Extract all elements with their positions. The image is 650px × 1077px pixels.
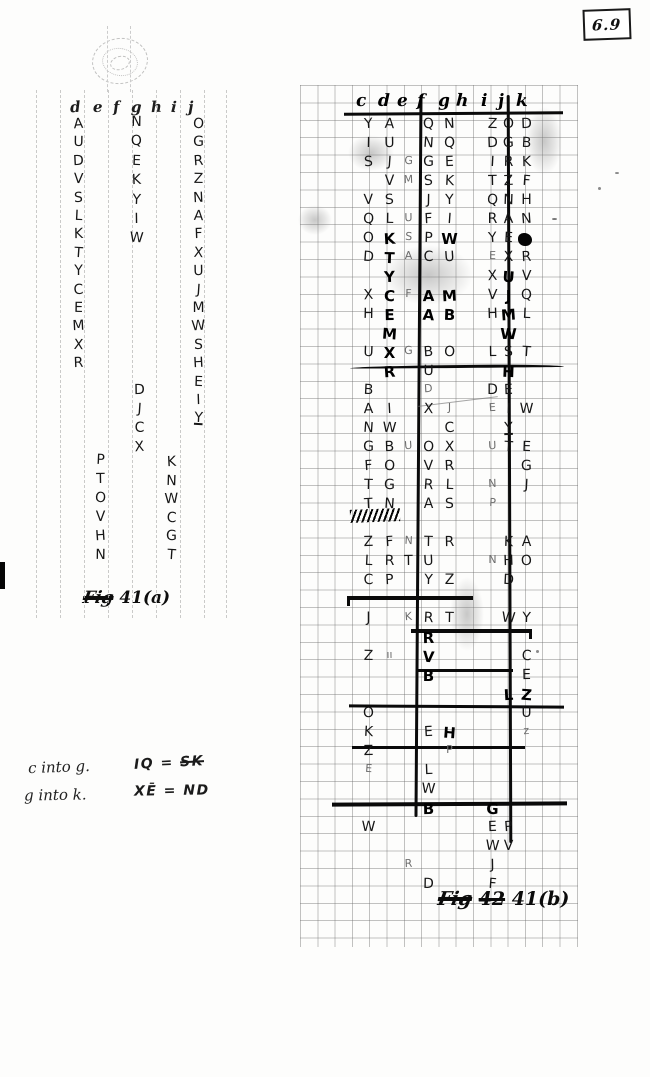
handwritten-letter: W xyxy=(189,318,207,337)
toner-smudge xyxy=(298,205,332,235)
horizontal-rule xyxy=(332,801,567,806)
handwritten-letter: W xyxy=(127,230,145,249)
handwritten-letter: K xyxy=(360,724,378,743)
column-header-letter: i xyxy=(171,98,178,116)
note-formula2: XĒ = ND xyxy=(134,782,210,799)
caption-fig-number: 41(b) xyxy=(512,888,570,910)
handwritten-letter: Z xyxy=(517,685,535,704)
dotted-column-rule xyxy=(36,90,37,618)
handwritten-letter: D xyxy=(500,572,518,591)
handwritten-letter: A xyxy=(518,534,535,552)
handwritten-letter: L xyxy=(381,211,398,229)
handwritten-letter: B xyxy=(420,800,437,818)
handwritten-letter: R xyxy=(500,154,517,172)
handwritten-letter: O xyxy=(91,489,109,508)
handwritten-letter: K xyxy=(441,173,459,192)
handwritten-letter: Q xyxy=(518,287,536,306)
column-header-letter: d xyxy=(69,98,81,117)
handwritten-letter: V xyxy=(500,838,517,856)
handwritten-letter: J xyxy=(500,287,517,305)
handwritten-letter: S xyxy=(190,337,207,355)
handwritten-letter: V xyxy=(381,173,398,191)
handwritten-letter: U xyxy=(420,363,437,381)
handwritten-letter: G xyxy=(400,154,418,173)
handwritten-letter: Y xyxy=(381,268,399,287)
handwritten-letter: M xyxy=(380,324,398,343)
handwritten-letter: I xyxy=(190,392,208,411)
handwritten-letter: G xyxy=(381,477,398,495)
scan-speck xyxy=(598,187,601,190)
handwritten-letter: J xyxy=(189,281,207,300)
handwritten-letter: W xyxy=(163,491,181,510)
handwritten-letter: R xyxy=(381,553,398,571)
dotted-column-rule xyxy=(180,90,181,618)
handwritten-letter: I xyxy=(484,154,502,173)
handwritten-letter: M xyxy=(400,173,418,192)
handwritten-letter: Q xyxy=(360,211,378,230)
handwritten-letter: K xyxy=(500,534,518,553)
handwritten-letter: T xyxy=(484,173,501,191)
handwritten-letter: G xyxy=(163,528,180,546)
handwritten-letter: A xyxy=(419,305,437,324)
handwritten-letter: B xyxy=(419,343,437,362)
handwritten-letter: K xyxy=(381,230,399,249)
handwritten-letter: I xyxy=(500,401,518,420)
handwritten-letter: O xyxy=(517,552,535,571)
handwritten-letter: A xyxy=(400,249,417,267)
handwritten-letter: E xyxy=(190,373,208,392)
handwritten-letter: F xyxy=(190,226,208,245)
handwritten-letter: S xyxy=(70,189,88,208)
handwritten-letter: X xyxy=(130,438,148,457)
handwritten-letter: G xyxy=(499,134,517,153)
handwritten-letter: O xyxy=(441,344,459,363)
handwritten-letter: K xyxy=(128,172,146,191)
handwritten-letter: R xyxy=(420,629,437,647)
handwritten-letter: C xyxy=(131,420,148,438)
column-header-letter: j xyxy=(188,98,194,116)
handwritten-letter: X xyxy=(359,286,377,305)
handwritten-letter: V xyxy=(419,647,437,666)
handwritten-letter: X xyxy=(70,337,88,356)
handwritten-letter: Y xyxy=(500,420,517,438)
handwritten-letter: F xyxy=(359,457,377,476)
handwritten-letter: P xyxy=(92,452,110,471)
dotted-column-rule xyxy=(226,90,227,618)
handwritten-letter: X xyxy=(381,344,398,362)
handwritten-letter: Z xyxy=(484,116,502,135)
handwritten-letter: W xyxy=(360,819,377,837)
handwritten-letter: H xyxy=(91,527,109,546)
handwritten-letter: R xyxy=(400,857,418,876)
handwritten-letter: S xyxy=(441,496,459,515)
handwritten-letter: M xyxy=(499,305,517,324)
handwritten-letter: A xyxy=(420,287,437,305)
handwritten-letter: L xyxy=(420,762,438,781)
handwritten-letter: O xyxy=(420,439,438,458)
handwritten-letter: J xyxy=(360,610,377,628)
caption-fig-word: Fig xyxy=(436,888,474,910)
handwritten-letter: E xyxy=(381,306,398,324)
handwritten-letter: L xyxy=(518,306,536,325)
handwritten-letter: H xyxy=(500,553,518,572)
column-header-letter: f xyxy=(417,91,425,111)
handwritten-letter: V xyxy=(420,458,437,476)
handwritten-letter: B xyxy=(518,135,536,154)
handwritten-letter: T xyxy=(517,343,535,362)
handwritten-letter: F xyxy=(400,287,417,305)
handwritten-letter: N xyxy=(517,210,535,229)
handwritten-letter: N xyxy=(484,553,501,571)
handwritten-letter: E xyxy=(500,230,518,249)
scan-edge-mark xyxy=(0,562,5,589)
dotted-column-rule xyxy=(60,90,61,618)
handwritten-letter: N xyxy=(163,472,181,491)
handwritten-letter: E xyxy=(70,300,87,318)
handwritten-letter: U xyxy=(400,211,417,229)
handwritten-letter: R xyxy=(70,355,88,374)
handwritten-letter: K xyxy=(163,454,181,473)
handwritten-letter: F xyxy=(517,172,535,191)
handwritten-letter: P xyxy=(499,818,517,837)
scan-speck xyxy=(615,172,619,174)
handwritten-letter: Q xyxy=(128,133,146,152)
handwritten-letter: J xyxy=(420,192,437,210)
fig-41b-caption: Fig 42 41(b) xyxy=(438,888,569,910)
handwritten-letter: X xyxy=(420,401,438,420)
handwritten-letter: O xyxy=(360,705,378,724)
handwritten-letter: N xyxy=(441,116,459,135)
handwritten-letter: U xyxy=(399,438,417,457)
handwritten-letter: U xyxy=(381,135,398,153)
handwritten-letter: U xyxy=(70,134,87,152)
handwritten-letter xyxy=(518,233,532,246)
column-header-letter: i xyxy=(481,91,487,111)
handwritten-letter: P xyxy=(484,496,502,515)
handwritten-letter: W xyxy=(420,781,438,800)
handwritten-letter: Z xyxy=(441,572,458,590)
handwritten-letter: R xyxy=(420,610,438,629)
handwritten-letter: Q xyxy=(420,116,437,134)
handwritten-letter: I xyxy=(381,401,399,420)
column-header-letter: e xyxy=(397,91,409,111)
handwritten-letter: T xyxy=(381,249,399,268)
handwritten-letter: Y xyxy=(190,410,208,429)
handwritten-letter: L xyxy=(441,477,459,496)
handwritten-letter: Y xyxy=(128,191,146,210)
handwritten-letter: E xyxy=(441,154,459,173)
handwritten-letter: J xyxy=(518,477,536,496)
handwritten-letter: L xyxy=(360,553,378,572)
handwritten-letter: X xyxy=(500,249,517,267)
handwritten-letter: V xyxy=(484,287,502,306)
handwritten-letter: B xyxy=(381,439,399,458)
handwritten-letter: F xyxy=(483,875,501,894)
handwritten-letter: G xyxy=(360,439,377,457)
handwritten-letter: N xyxy=(484,477,502,496)
note-formula1: IQ = SK xyxy=(134,753,205,773)
page-number-box: 6.9 xyxy=(582,8,631,41)
handwritten-letter: T xyxy=(499,438,517,457)
handwritten-letter: K xyxy=(518,154,535,172)
dotted-column-rule xyxy=(156,90,157,618)
handwritten-letter: S xyxy=(380,191,398,210)
handwritten-letter: W xyxy=(441,230,458,248)
handwritten-letter: E xyxy=(128,153,146,172)
handwritten-letter: D xyxy=(70,152,88,171)
handwritten-letter: A xyxy=(420,496,437,514)
handwritten-letter: V xyxy=(518,268,536,287)
handwritten-letter: E xyxy=(518,667,535,685)
handwritten-letter: T xyxy=(92,471,109,489)
handwritten-letter: H xyxy=(518,192,535,210)
handwritten-letter: U xyxy=(440,248,458,267)
handwritten-letter: Y xyxy=(420,572,438,591)
handwritten-letter: R xyxy=(189,152,207,171)
handwritten-letter: P xyxy=(381,572,399,591)
handwritten-letter: R xyxy=(441,534,458,552)
handwritten-letter: N xyxy=(190,189,208,208)
handwritten-letter: N xyxy=(128,114,145,132)
handwritten-letter: J xyxy=(441,401,458,419)
handwritten-letter: Y xyxy=(441,192,458,210)
handwritten-letter: R xyxy=(518,249,536,268)
handwritten-letter: C xyxy=(360,572,377,590)
handwritten-letter: I xyxy=(440,210,458,229)
handwritten-letter: C xyxy=(440,419,458,438)
handwritten-letter: Y xyxy=(518,610,536,629)
handwritten-letter: E xyxy=(500,382,518,401)
handwritten-letter: W xyxy=(518,401,535,419)
handwritten-letter: H xyxy=(440,723,458,742)
handwritten-letter: K xyxy=(399,609,417,628)
column-header-letter: f xyxy=(113,98,120,116)
handwritten-letter: T xyxy=(400,553,417,571)
fig-41b: Fig 42 41(b) cdefghijkYAQNZODIUNQDGBSJGG… xyxy=(300,85,578,947)
column-header-letter: h xyxy=(151,98,163,116)
scan-speck xyxy=(536,650,539,653)
handwritten-letter: C xyxy=(381,287,399,306)
handwritten-letter: T xyxy=(69,244,87,263)
column-header-letter: j xyxy=(497,91,504,111)
handwritten-letter: R xyxy=(419,476,437,495)
note-line1: c into g. xyxy=(28,757,90,777)
handwritten-letter: D xyxy=(131,382,148,400)
handwritten-letter: C xyxy=(69,281,87,300)
handwritten-letter: R xyxy=(380,362,398,381)
caption-fig-number: 41(a) xyxy=(119,588,170,608)
handwritten-letter: N xyxy=(380,495,398,514)
handwritten-letter: O xyxy=(189,115,207,134)
handwritten-letter: I xyxy=(360,135,377,153)
handwritten-letter: S xyxy=(419,172,437,191)
handwritten-letter: G xyxy=(420,154,437,172)
handwritten-letter: T xyxy=(360,496,378,515)
handwritten-letter: H xyxy=(360,306,377,324)
handwritten-letter: A xyxy=(69,115,87,134)
handwritten-letter: M xyxy=(441,287,459,306)
handwritten-letter: Z xyxy=(360,648,377,666)
handwritten-letter: H xyxy=(500,363,518,382)
handwritten-letter: M xyxy=(70,318,88,337)
handwritten-letter: C xyxy=(163,509,181,528)
handwritten-letter: ıı xyxy=(381,648,398,666)
handwritten-letter: N xyxy=(400,534,418,553)
handwritten-letter: Z xyxy=(190,171,207,189)
handwritten-letter: U xyxy=(499,267,517,286)
handwritten-letter: U xyxy=(360,344,378,363)
handwritten-letter: W xyxy=(484,838,502,857)
handwritten-letter: Z xyxy=(500,173,518,192)
handwritten-letter: O xyxy=(500,116,517,134)
scan-speck xyxy=(552,218,557,220)
doodle-line xyxy=(130,26,131,92)
handwritten-letter: G xyxy=(518,458,536,477)
column-header-letter: k xyxy=(516,91,528,111)
column-header-letter: g xyxy=(438,91,450,111)
handwritten-letter: S xyxy=(360,154,378,173)
handwritten-letter: H xyxy=(190,355,208,374)
handwritten-letter: Q xyxy=(441,135,459,154)
handwritten-letter: z xyxy=(517,723,535,742)
handwritten-letter: W xyxy=(381,420,399,439)
handwritten-letter: B xyxy=(360,382,378,401)
caption-fig-word: Fig xyxy=(81,588,115,608)
handwritten-letter: A xyxy=(500,211,518,230)
handwritten-letter: P xyxy=(420,230,438,249)
handwritten-letter: J xyxy=(380,153,398,172)
handwritten-letter: V xyxy=(70,171,88,190)
handwritten-letter: O xyxy=(381,458,399,477)
handwritten-letter: P xyxy=(441,743,458,761)
handwritten-letter: G xyxy=(190,134,207,152)
handwritten-letter: N xyxy=(359,419,377,438)
column-header-letter: h xyxy=(455,91,468,112)
column-header-letter: d xyxy=(378,91,390,111)
handwritten-letter: D xyxy=(420,382,438,401)
handwritten-letter: U xyxy=(420,553,438,572)
handwritten-letter: C xyxy=(518,648,536,667)
handwritten-letter: O xyxy=(360,230,377,248)
handwritten-letter: E xyxy=(420,724,438,743)
handwritten-letter: D xyxy=(420,876,437,894)
handwritten-letter: L xyxy=(500,686,518,705)
handwritten-letter: E xyxy=(359,761,377,780)
handwritten-letter: D xyxy=(484,382,501,400)
handwritten-letter: V xyxy=(92,509,109,527)
handwritten-letter: T xyxy=(441,610,458,628)
handwritten-letter: N xyxy=(419,134,437,153)
column-header-letter: e xyxy=(93,98,103,116)
handwritten-letter: Z xyxy=(360,743,377,761)
scanned-page: 6.9 Fig 41(a) defghijAUDVSLKTYCEMXRPTOVH… xyxy=(0,0,650,1077)
handwritten-letter: I xyxy=(128,211,145,229)
handwritten-letter: D xyxy=(359,248,377,267)
handwritten-letter: G xyxy=(400,344,418,363)
handwritten-letter: T xyxy=(162,546,180,565)
handwritten-letter: T xyxy=(360,477,377,495)
pencil-doodle xyxy=(88,32,152,90)
rule-hook xyxy=(347,596,350,606)
handwritten-letter: Y xyxy=(359,115,377,134)
fig-41a: Fig 41(a) defghijAUDVSLKTYCEMXRPTOVHNNQE… xyxy=(30,90,238,630)
handwritten-letter: A xyxy=(360,401,377,419)
handwritten-letter: J xyxy=(130,400,148,419)
handwritten-letter: V xyxy=(360,192,378,211)
horizontal-rule xyxy=(347,596,473,600)
handwritten-letter: K xyxy=(70,226,87,244)
handwritten-letter: U xyxy=(190,263,207,281)
handwritten-letter: W xyxy=(499,609,517,628)
handwritten-letter: Y xyxy=(70,263,87,281)
handwritten-letter: F xyxy=(380,533,398,552)
formula-text: IQ = xyxy=(134,754,181,772)
handwritten-letter: N xyxy=(500,192,518,211)
handwritten-letter: S xyxy=(399,229,417,248)
handwritten-letter: L xyxy=(484,344,501,362)
handwritten-letter: X xyxy=(190,244,208,263)
handwritten-letter: W xyxy=(500,325,517,343)
handwritten-letter: X xyxy=(441,439,458,457)
handwritten-letter: B xyxy=(420,667,437,685)
handwritten-letter: C xyxy=(420,249,438,268)
handwritten-letter: Z xyxy=(360,534,378,553)
handwritten-letter: A xyxy=(381,116,399,135)
column-header-letter: c xyxy=(355,91,366,112)
note-line2: g into k. xyxy=(24,785,87,804)
handwritten-letter: U xyxy=(518,705,535,723)
handwritten-letter: J xyxy=(484,857,501,875)
handwritten-letter: R xyxy=(484,211,501,229)
handwritten-letter: L xyxy=(70,208,88,227)
handwritten-letter: F xyxy=(420,211,438,230)
handwritten-letter: A xyxy=(190,208,208,227)
handwritten-letter: E xyxy=(484,249,501,267)
doodle-line xyxy=(107,26,108,92)
handwritten-letter: S xyxy=(500,344,518,363)
handwritten-letter: R xyxy=(441,458,459,477)
handwritten-letter: E xyxy=(518,439,536,458)
handwritten-letter: G xyxy=(484,800,502,819)
rule-hook xyxy=(529,629,532,639)
handwritten-letter: B xyxy=(441,306,459,325)
fig-41a-caption: Fig 41(a) xyxy=(83,588,170,608)
horizontal-rule xyxy=(352,746,525,749)
formula-struck: SK xyxy=(180,753,205,770)
handwritten-letter: D xyxy=(518,116,536,135)
handwritten-letter: N xyxy=(92,547,109,565)
margin-notes: c into g. g into k. IQ = SK XĒ = ND xyxy=(22,750,252,816)
handwritten-letter: M xyxy=(190,300,207,318)
page-number: 6.9 xyxy=(592,15,622,34)
handwritten-letter: T xyxy=(420,534,437,552)
